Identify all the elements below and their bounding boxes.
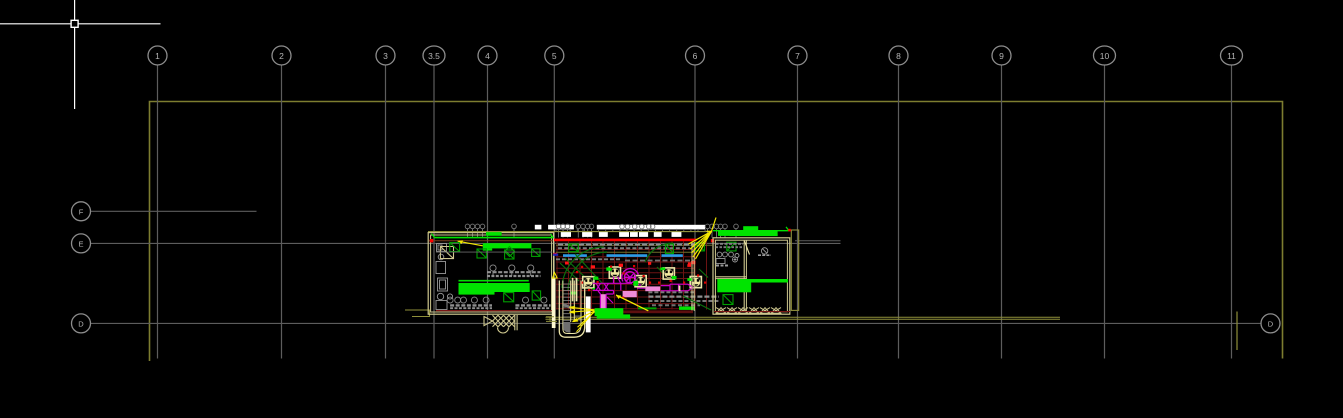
svg-text:2: 2 — [279, 51, 284, 61]
svg-text:10: 10 — [1100, 51, 1110, 61]
svg-text:4: 4 — [485, 51, 490, 61]
svg-text:3.5: 3.5 — [428, 51, 440, 61]
svg-text:7: 7 — [795, 51, 800, 61]
svg-text:1: 1 — [155, 51, 160, 61]
svg-text:6: 6 — [693, 51, 698, 61]
svg-text:D: D — [1268, 320, 1274, 329]
svg-text:9: 9 — [999, 51, 1004, 61]
svg-text:5: 5 — [552, 51, 557, 61]
svg-text:11: 11 — [1227, 51, 1236, 61]
svg-text:8: 8 — [896, 51, 901, 61]
svg-text:3: 3 — [383, 51, 388, 61]
svg-text:F: F — [79, 208, 84, 217]
svg-text:E: E — [78, 240, 83, 249]
svg-text:D: D — [78, 320, 84, 329]
